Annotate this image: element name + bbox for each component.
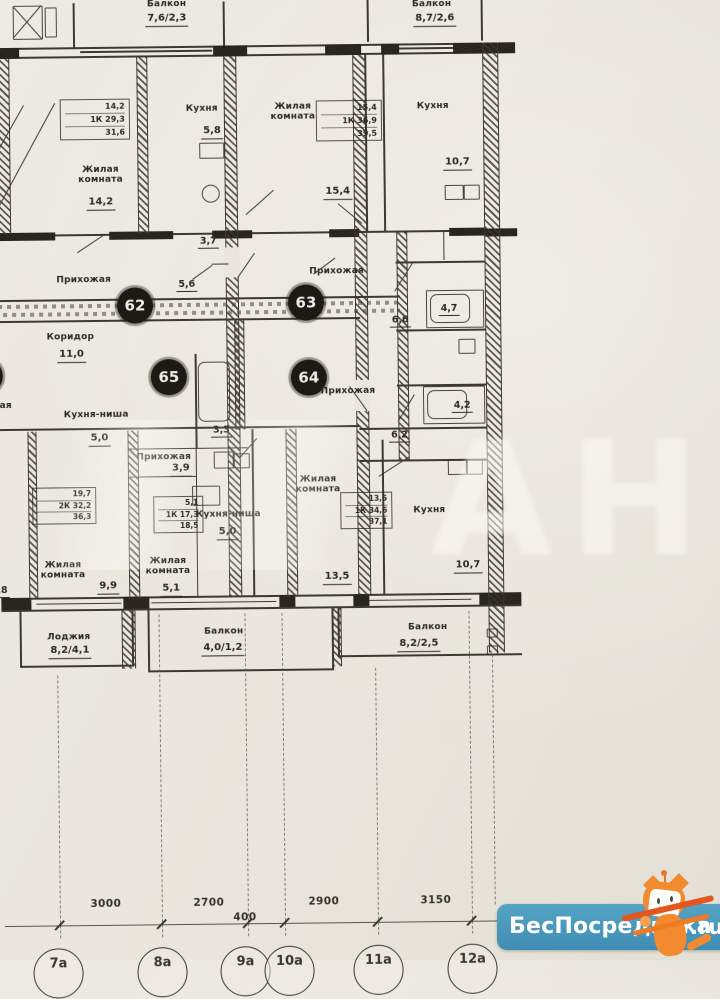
kitchen-stove <box>464 185 480 200</box>
room-label: Прихожая <box>136 452 191 463</box>
apartment-stamp: 14,2 1К 29,3 31,6 <box>60 99 130 141</box>
wall-pier <box>213 45 247 56</box>
wall <box>443 232 445 260</box>
room-area: 5,0 <box>89 434 111 447</box>
axis-label: 12а <box>448 951 496 967</box>
axis-line <box>245 613 250 936</box>
dim-small: 6,6 <box>390 315 411 327</box>
room-label: Кухня <box>186 104 218 114</box>
stamp-total: 1К 34,6 <box>345 505 387 517</box>
window-line <box>366 599 471 601</box>
wall-bearing <box>396 231 410 459</box>
axis-label: 8а <box>138 955 186 971</box>
wall-pier <box>353 594 369 606</box>
axis-bubble: 7а <box>33 948 84 999</box>
washer <box>214 451 234 468</box>
axis-line <box>159 614 164 937</box>
balcony-rail <box>19 610 21 668</box>
room-area: 14,2 <box>86 198 115 211</box>
room-area: 11,0 <box>57 350 86 363</box>
axis-marker <box>487 628 498 637</box>
wall <box>382 55 385 231</box>
axis-bubble: 11а <box>353 945 404 996</box>
dimension-line <box>5 920 517 927</box>
axis-bubble: 12а <box>447 943 498 994</box>
dim-small: 6,2 <box>389 430 410 442</box>
stamp-living: 13,5 <box>345 494 387 506</box>
room-area: 10,7 <box>443 157 472 170</box>
stamp-total: 2К 32,2 <box>37 501 91 513</box>
axis-label: 9а <box>221 954 269 970</box>
balcony-pier <box>331 606 342 666</box>
axis-label: 10а <box>265 954 313 970</box>
room-label: Прихожая <box>321 386 376 397</box>
room-area: 3,9 <box>170 464 192 477</box>
wall <box>1 604 521 612</box>
axis-bubble: 9а <box>220 946 271 997</box>
wall-pier <box>0 48 19 59</box>
balcony-label: Балкон <box>412 0 451 9</box>
stamp-living: 14,2 <box>65 101 125 115</box>
axis-bubble: 8а <box>137 947 188 998</box>
kitchen-counter <box>199 143 224 159</box>
balcony-label: Балкон <box>204 626 243 637</box>
room-label-cut: жая <box>0 401 12 411</box>
door-leaf <box>237 253 255 279</box>
balcony-rail <box>20 665 134 668</box>
room-label: Кухня-ниша <box>196 509 261 520</box>
dim-small: 5,6 <box>176 280 197 292</box>
wall <box>359 427 487 430</box>
balcony-label: Балкон <box>147 0 186 9</box>
plan-sheet: 14,2 1К 29,3 31,6 15,4 1К 36,9 39,5 19,7… <box>0 0 720 964</box>
door-leaf <box>77 233 106 253</box>
dimension-value: 2700 <box>193 897 224 909</box>
stamp-total-balcony: 39,5 <box>321 128 377 141</box>
sink <box>234 453 250 468</box>
apartment-number-partial <box>0 358 3 394</box>
balcony-area: 7,6/2,3 <box>145 14 188 27</box>
kitchen-sink <box>448 460 467 475</box>
kitchen-stove <box>467 460 483 475</box>
room-label: Прихожая <box>56 275 111 286</box>
wall-pier <box>381 44 399 55</box>
axis-label: 11а <box>354 953 402 969</box>
room-label: Прихожая <box>309 266 364 277</box>
leader-line <box>192 265 212 280</box>
stamp-total: 1К 36,9 <box>321 115 377 129</box>
wall-pier <box>449 228 485 236</box>
balcony-rail <box>73 3 75 47</box>
balcony-rail <box>148 668 334 672</box>
balcony-area: 8,2/4,1 <box>48 646 91 659</box>
wall-bearing <box>136 57 149 233</box>
room-label: Жилая комната <box>33 560 93 581</box>
balcony-area: 8,7/2,6 <box>413 14 456 27</box>
room-area: 5,0 <box>217 527 239 540</box>
stamp-living: 5,1 <box>158 498 198 510</box>
axis-marker <box>487 645 498 654</box>
balcony-rail <box>223 2 225 46</box>
stamp-total: 1К 17,3 <box>158 509 198 521</box>
room-label: Коридор <box>47 332 95 343</box>
room-area: 10,7 <box>454 560 483 573</box>
stamp-total-balcony: 36,3 <box>37 512 91 523</box>
site-watermark-badge: БесПосредника .ru <box>497 904 720 950</box>
wall-bearing <box>234 319 245 429</box>
site-name: БесПосредника <box>509 904 712 950</box>
axis-line <box>57 675 61 938</box>
balcony-label: Лоджия <box>47 632 90 643</box>
toilet <box>458 339 475 354</box>
axis-line <box>468 611 473 934</box>
wall-pier <box>1 598 31 610</box>
bathtub <box>198 361 231 421</box>
room-area: 5,1 <box>160 584 182 597</box>
stamp-living: 15,4 <box>321 102 377 116</box>
room-area: 9,9 <box>97 581 119 594</box>
axis-bubble: 10а <box>264 946 315 997</box>
balcony-area: 8,2/2,5 <box>397 639 440 652</box>
dimension-value: 3000 <box>90 898 121 910</box>
room-label: Жилая комната <box>288 474 348 495</box>
door-leaf <box>246 190 275 216</box>
dim-small: 3,3 <box>211 425 232 437</box>
room-label: Жилая комната <box>70 165 130 186</box>
window-line <box>36 603 121 605</box>
apartment-number: 65 <box>151 359 187 395</box>
balcony-rail <box>481 0 483 41</box>
door-opening <box>223 247 239 277</box>
room-area: 15,4 <box>323 187 352 200</box>
room-area: 5,8 <box>201 126 223 139</box>
wall-pier <box>325 44 361 55</box>
balcony-rail <box>147 608 149 672</box>
apartment-stamp: 15,4 1К 36,9 39,5 <box>316 100 382 142</box>
apartment-number: 62 <box>117 287 153 323</box>
axis-line <box>492 655 496 905</box>
stamp-total: 1К 29,3 <box>65 114 125 128</box>
leader-line <box>212 263 229 264</box>
kitchen-sink <box>445 185 464 200</box>
room-label: Кухня-ниша <box>64 410 129 421</box>
window-line <box>151 601 276 604</box>
axis-label: 7а <box>34 956 82 972</box>
wall-bearing <box>482 42 505 652</box>
dim-small: 4,2 <box>452 401 473 413</box>
sink-round <box>202 185 220 203</box>
balcony-pier <box>121 609 136 669</box>
room-area-cut: 9,8 <box>0 586 10 598</box>
stamp-total-balcony: 18,5 <box>158 521 198 532</box>
room-label: Жилая комната <box>138 556 198 577</box>
balcony-area: 4,0/1,2 <box>201 643 244 656</box>
axis-line <box>282 613 287 936</box>
balcony-rail <box>367 0 369 42</box>
apartment-stamp: 13,5 1К 34,6 37,1 <box>340 492 392 529</box>
apartment-stamp: 19,7 2К 32,2 36,3 <box>32 487 96 524</box>
wall <box>0 425 359 431</box>
window-line <box>80 50 212 53</box>
shaft <box>45 7 57 37</box>
wall <box>396 261 486 264</box>
stamp-total-balcony: 37,1 <box>345 517 387 528</box>
apartment-number: 63 <box>288 284 324 320</box>
stamp-living: 19,7 <box>37 489 91 501</box>
balcony-label: Балкон <box>408 622 447 633</box>
dimension-value: 3150 <box>420 894 451 906</box>
stamp-total-balcony: 31,6 <box>65 127 125 140</box>
axis-line <box>375 668 379 935</box>
site-domain: .ru <box>690 904 720 950</box>
dimension-value: 2900 <box>308 895 339 907</box>
room-label: Кухня <box>413 505 445 515</box>
dim-small: 3,7 <box>198 237 219 249</box>
room-label: Кухня <box>417 101 449 111</box>
wall-bearing <box>0 59 11 235</box>
wall <box>396 329 486 332</box>
room-label: Жилая комната <box>263 101 323 122</box>
wall <box>0 51 515 59</box>
wall-bearing <box>285 429 298 597</box>
wall <box>0 229 517 237</box>
dimension-value: 400 <box>233 911 256 923</box>
floor-plan-photo: { "plan": { "top_balconies": [ {"name": … <box>0 0 720 960</box>
room-area: 13,5 <box>323 572 352 585</box>
dim-small: 4,7 <box>439 304 460 316</box>
